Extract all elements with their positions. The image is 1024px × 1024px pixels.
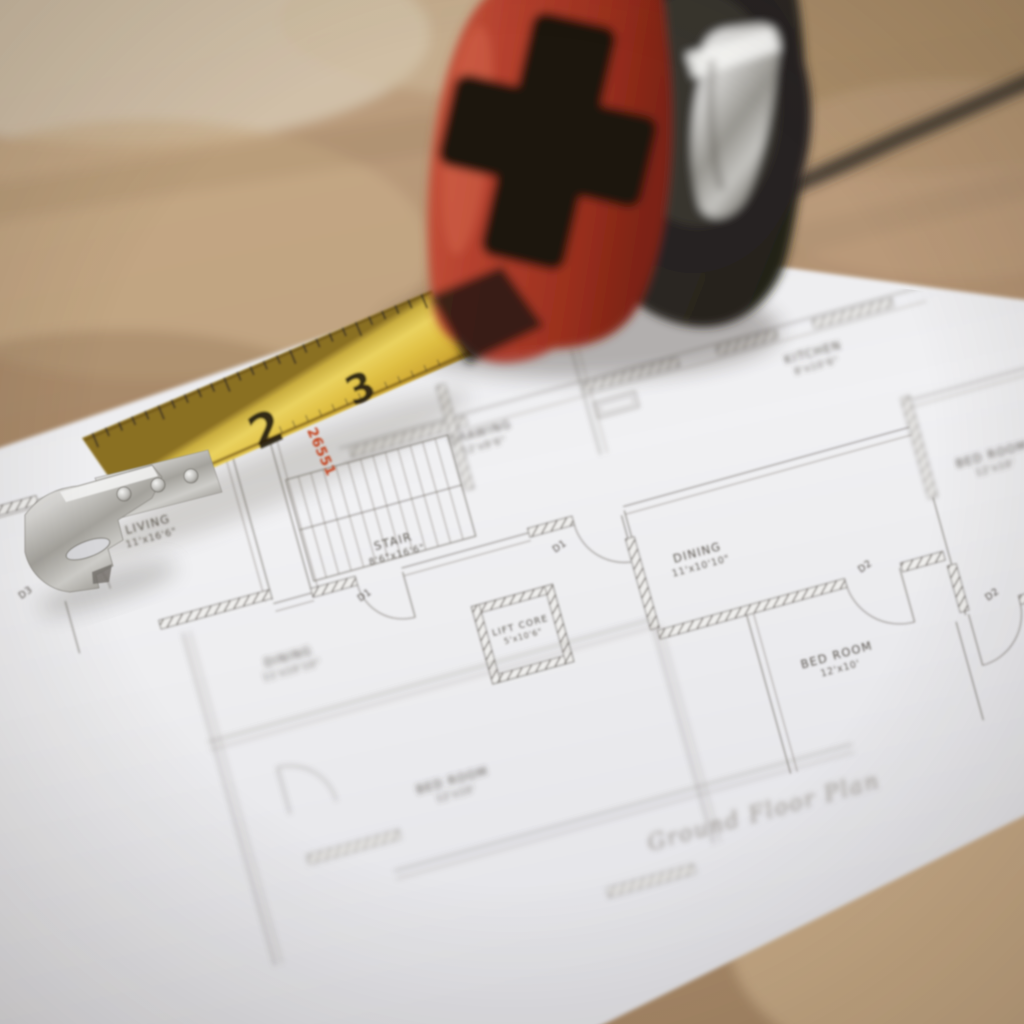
scene-canvas: DRAWING 12'x9'6" KITCHEN 8'x10'6" BED RO… (0, 0, 1024, 1024)
vignette-overlay (0, 0, 1024, 1024)
photo-scene: DRAWING 12'x9'6" KITCHEN 8'x10'6" BED RO… (0, 0, 1024, 1024)
